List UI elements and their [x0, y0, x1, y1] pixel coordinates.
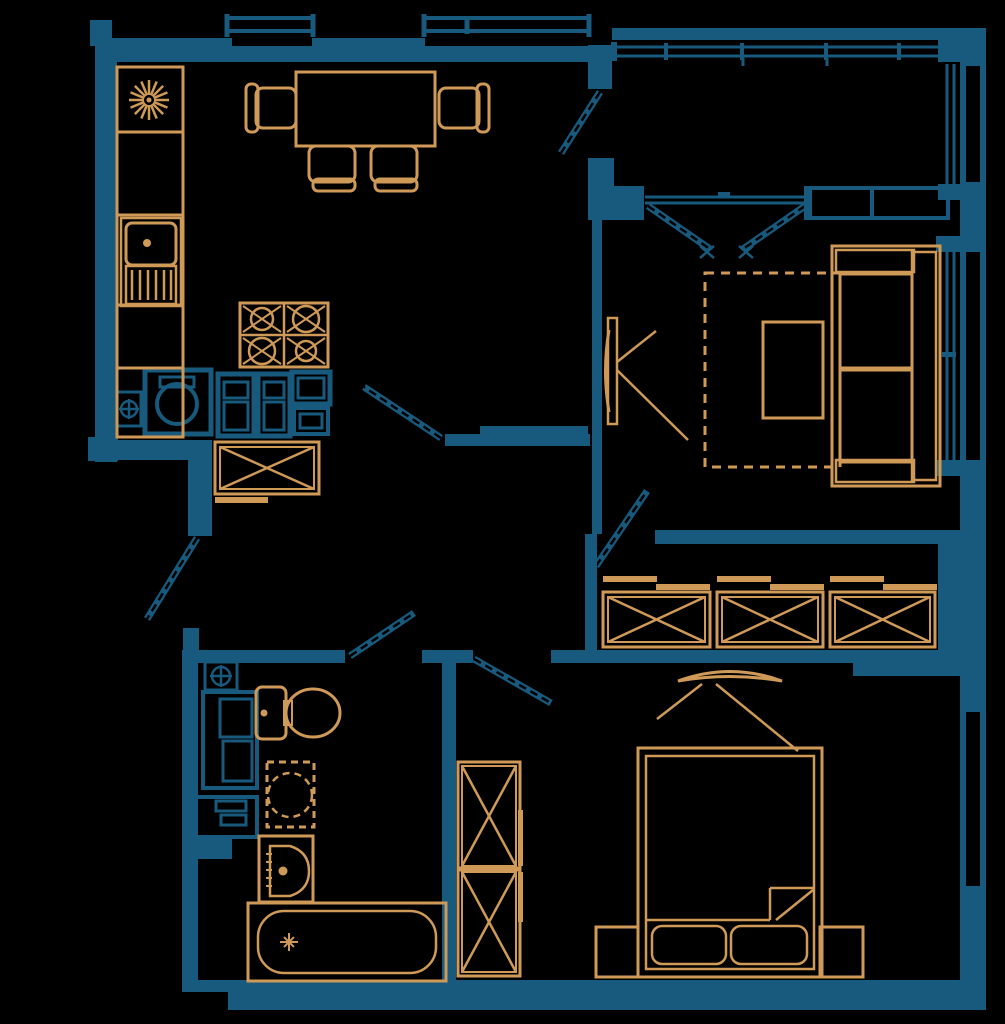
vestibule-wall-stub [188, 440, 212, 536]
bath-wall-stub-lower [188, 837, 232, 859]
washbasin-faucet [279, 867, 288, 876]
floor-plan-svg [0, 0, 1005, 1024]
bathroom-wall-stub [183, 628, 199, 652]
hob-starburst-icon [129, 80, 169, 120]
bathroom-bedroom-wall [442, 663, 456, 981]
bedroom-wardrobe-door-strip-2 [518, 872, 523, 922]
hall-cabinet-strip [215, 497, 268, 503]
hall-wardrobe-2-track-b [770, 584, 824, 590]
kitchen-left-wall [95, 40, 117, 462]
bedroom-top-wall [551, 650, 855, 663]
hall-wardrobe-1-track-a [603, 576, 657, 582]
right-outer-gap-balcony [966, 66, 980, 182]
kitchen-door-wall-thick [480, 426, 588, 436]
hall-wardrobe-2-track-a [717, 576, 771, 582]
kitchen-living-wall [592, 220, 602, 534]
bottom-wall-outer [228, 992, 986, 1010]
kitchen-top-wall-pier-2 [312, 38, 425, 48]
kitchen-sink-faucet [143, 239, 151, 247]
balcony-top-wall [612, 28, 956, 40]
floor-plan-canvas [0, 0, 1005, 1024]
hall-bottom-wall-piece [422, 650, 473, 663]
kitchen-bottom-wall-left [95, 440, 192, 460]
bedroom-top-wall-right [853, 650, 960, 676]
hall-wardrobe-3-track-a [830, 576, 884, 582]
wall-block-step [614, 186, 644, 220]
living-window-tick [942, 352, 956, 357]
bedroom-wardrobe-door-strip-1 [518, 810, 523, 866]
balcony-window-bottom-cap [938, 184, 960, 200]
wall-block-kitchen-living [588, 158, 614, 220]
kitchen-top-wall-pier-1 [95, 38, 232, 48]
french-door-center-tick [718, 192, 730, 198]
living-bottom-wall [655, 530, 940, 544]
right-outer-gap-bedroom [966, 712, 980, 886]
balcony-door-pier [588, 45, 612, 89]
right-outer-gap-living [966, 252, 980, 460]
balcony-living-wall-post [804, 186, 812, 220]
hall-wardrobe-3-track-b [883, 584, 937, 590]
balcony-window-top-cap [938, 44, 960, 62]
toilet-button [261, 710, 268, 717]
hall-wardrobe-1-track-b [656, 584, 710, 590]
living-right-vertical-wall [938, 530, 960, 654]
kitchen-top-wall [95, 46, 592, 62]
hall-left-wall [585, 534, 597, 652]
